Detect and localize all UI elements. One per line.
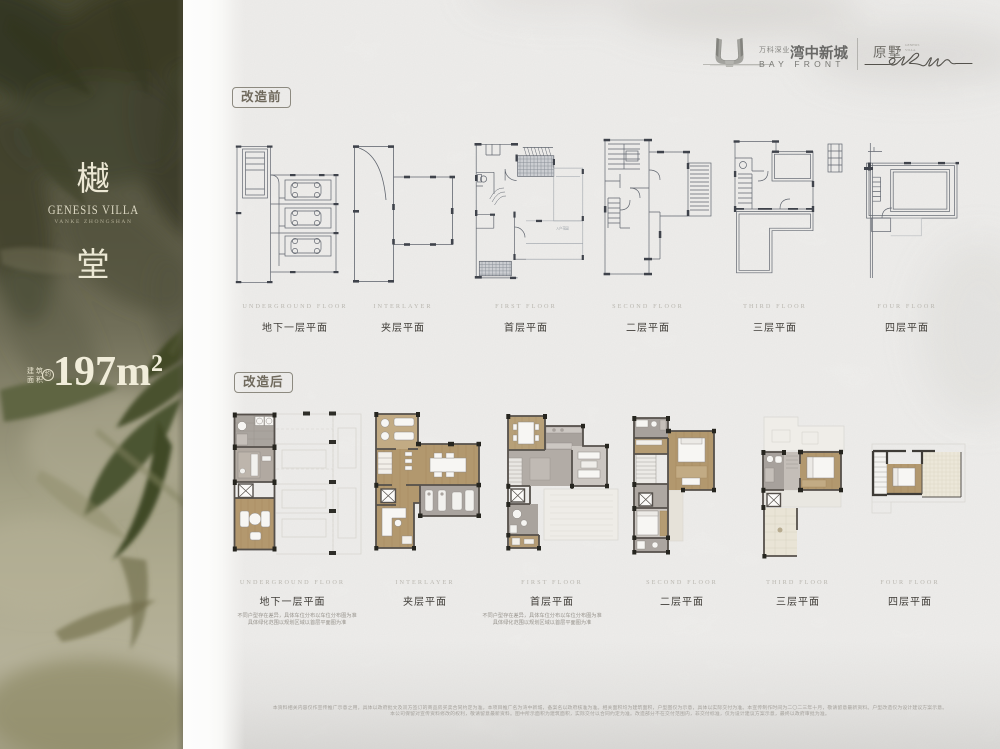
- svg-text:入户花园: 入户花园: [556, 226, 569, 231]
